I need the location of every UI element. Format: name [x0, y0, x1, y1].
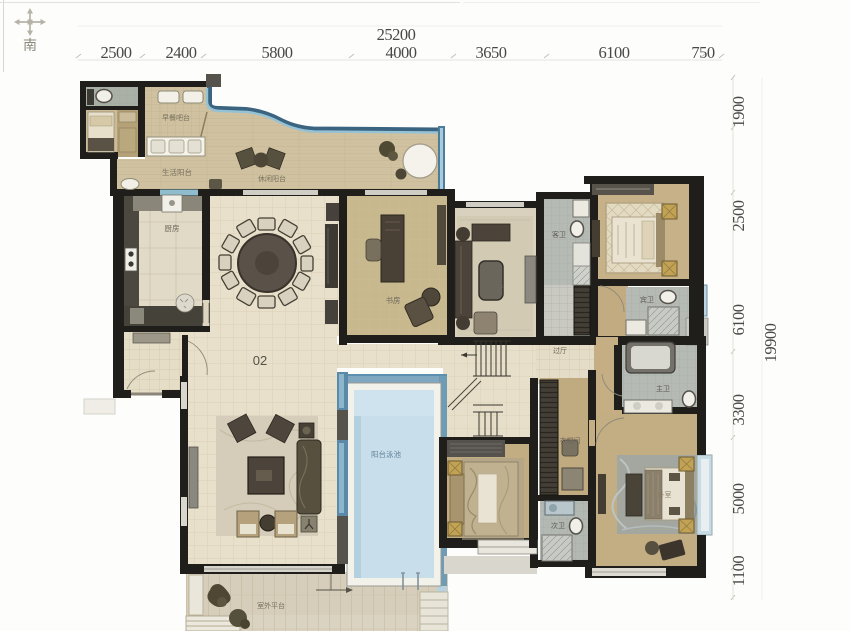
svg-text:5000: 5000 [729, 483, 748, 514]
svg-text:休闲阳台: 休闲阳台 [258, 174, 286, 183]
svg-text:3300: 3300 [729, 394, 748, 425]
svg-text:主卫: 主卫 [656, 384, 670, 393]
svg-text:厨房: 厨房 [165, 223, 180, 233]
svg-text:早餐吧台: 早餐吧台 [162, 113, 190, 122]
svg-text:次卫: 次卫 [551, 521, 565, 530]
svg-text:衣帽间: 衣帽间 [560, 436, 581, 445]
svg-text:1100: 1100 [729, 556, 748, 587]
svg-text:6100: 6100 [599, 43, 630, 62]
svg-text:25200: 25200 [377, 25, 416, 44]
svg-text:宾卫: 宾卫 [640, 295, 654, 304]
svg-text:1900: 1900 [729, 96, 748, 127]
svg-text:主卧室: 主卧室 [651, 490, 672, 499]
svg-text:19900: 19900 [761, 323, 780, 362]
svg-text:过厅: 过厅 [553, 346, 567, 355]
svg-text:3650: 3650 [476, 43, 507, 62]
svg-text:阳台泳池: 阳台泳池 [371, 449, 401, 459]
svg-text:4000: 4000 [386, 43, 417, 62]
svg-text:家庭厅: 家庭厅 [483, 284, 504, 293]
svg-text:客卫: 客卫 [552, 230, 566, 239]
svg-text:6100: 6100 [729, 304, 748, 335]
svg-text:生活阳台: 生活阳台 [162, 167, 192, 177]
svg-text:南: 南 [23, 37, 37, 53]
svg-text:750: 750 [691, 43, 715, 62]
svg-text:书房: 书房 [386, 295, 401, 305]
svg-text:2500: 2500 [101, 43, 132, 62]
svg-text:2400: 2400 [166, 43, 197, 62]
svg-text:5800: 5800 [262, 43, 293, 62]
svg-text:2500: 2500 [729, 200, 748, 231]
svg-text:室外平台: 室外平台 [257, 601, 285, 610]
svg-text:02: 02 [253, 353, 267, 368]
